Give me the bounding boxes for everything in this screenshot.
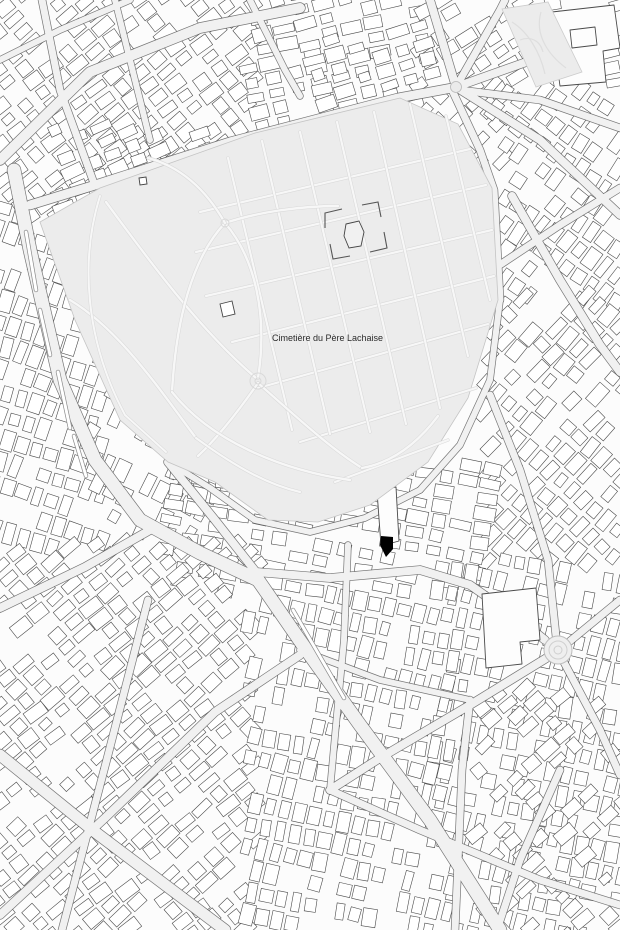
- map-canvas: Cimetière du Père Lachaise: [0, 0, 620, 930]
- map-viewport[interactable]: Cimetière du Père Lachaise: [0, 0, 620, 930]
- cemetery-label: Cimetière du Père Lachaise: [272, 333, 383, 343]
